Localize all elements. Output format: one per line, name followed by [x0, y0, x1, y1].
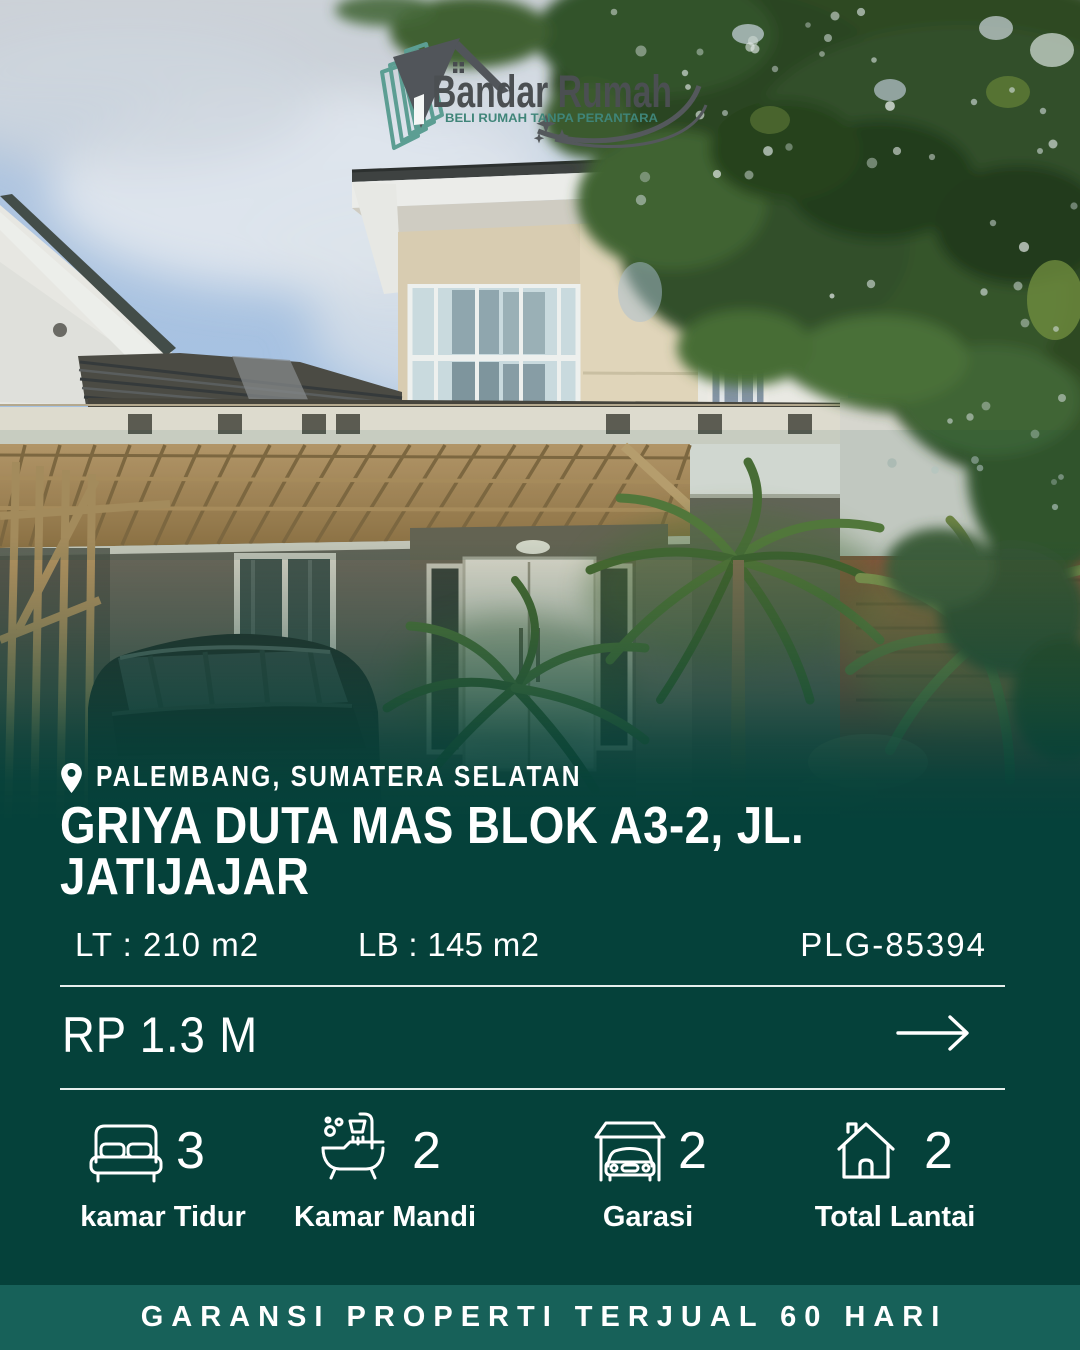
svg-text:Bandar Rumah: Bandar Rumah: [432, 66, 672, 117]
svg-text:BELI RUMAH TANPA PERANTARA: BELI RUMAH TANPA PERANTARA: [445, 113, 658, 125]
